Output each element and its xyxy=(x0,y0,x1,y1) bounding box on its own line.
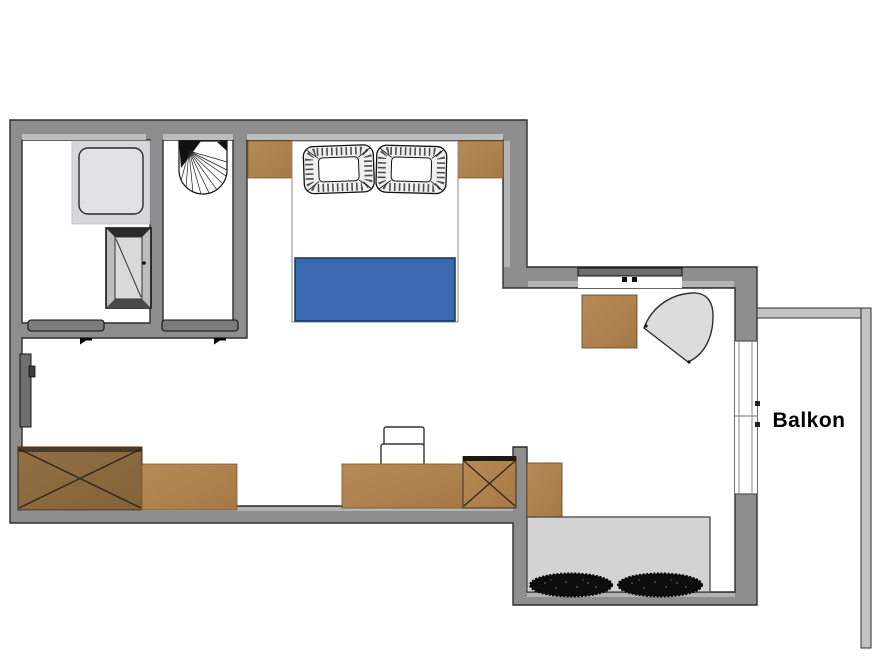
wall-lining xyxy=(163,134,233,140)
entrance-door xyxy=(20,354,35,427)
wall-lining xyxy=(504,141,510,267)
nightstand-right xyxy=(458,141,503,178)
washbasin xyxy=(179,141,227,194)
door-handle-icon xyxy=(755,422,760,427)
sideboard xyxy=(142,464,237,510)
wall-lining xyxy=(528,281,578,287)
balcony-door xyxy=(735,341,760,494)
armchair xyxy=(644,293,713,364)
desk xyxy=(342,464,463,508)
balcony-wall-top xyxy=(757,308,871,318)
shower-tray xyxy=(72,141,150,224)
door-hook-icon xyxy=(214,338,226,345)
wall-lining xyxy=(682,281,734,287)
interior-window xyxy=(106,228,151,308)
dark-mat-left xyxy=(530,574,612,597)
pillow-right xyxy=(376,145,447,194)
wall-lining xyxy=(247,134,503,140)
door-hook-icon xyxy=(80,338,92,345)
floor-plan-drawing: Balkon xyxy=(0,0,880,660)
window-handle-icon xyxy=(142,261,146,265)
window xyxy=(578,268,682,288)
balcony-label: Balkon xyxy=(772,409,845,432)
pillow-left xyxy=(303,145,375,194)
floor-plan: Balkon xyxy=(0,0,880,660)
desk-chair xyxy=(381,427,424,465)
blue-blanket xyxy=(295,258,455,321)
square-table xyxy=(582,295,637,348)
wardrobe xyxy=(18,447,142,510)
wall-lining xyxy=(22,134,146,140)
door-handle-icon xyxy=(29,366,35,377)
nightstand-left xyxy=(248,141,293,178)
cross-cabinet xyxy=(463,456,516,508)
door-handle-icon xyxy=(755,401,760,406)
dark-mat-right xyxy=(618,574,702,597)
side-cabinet xyxy=(527,463,562,517)
balcony-wall-right xyxy=(861,308,871,648)
